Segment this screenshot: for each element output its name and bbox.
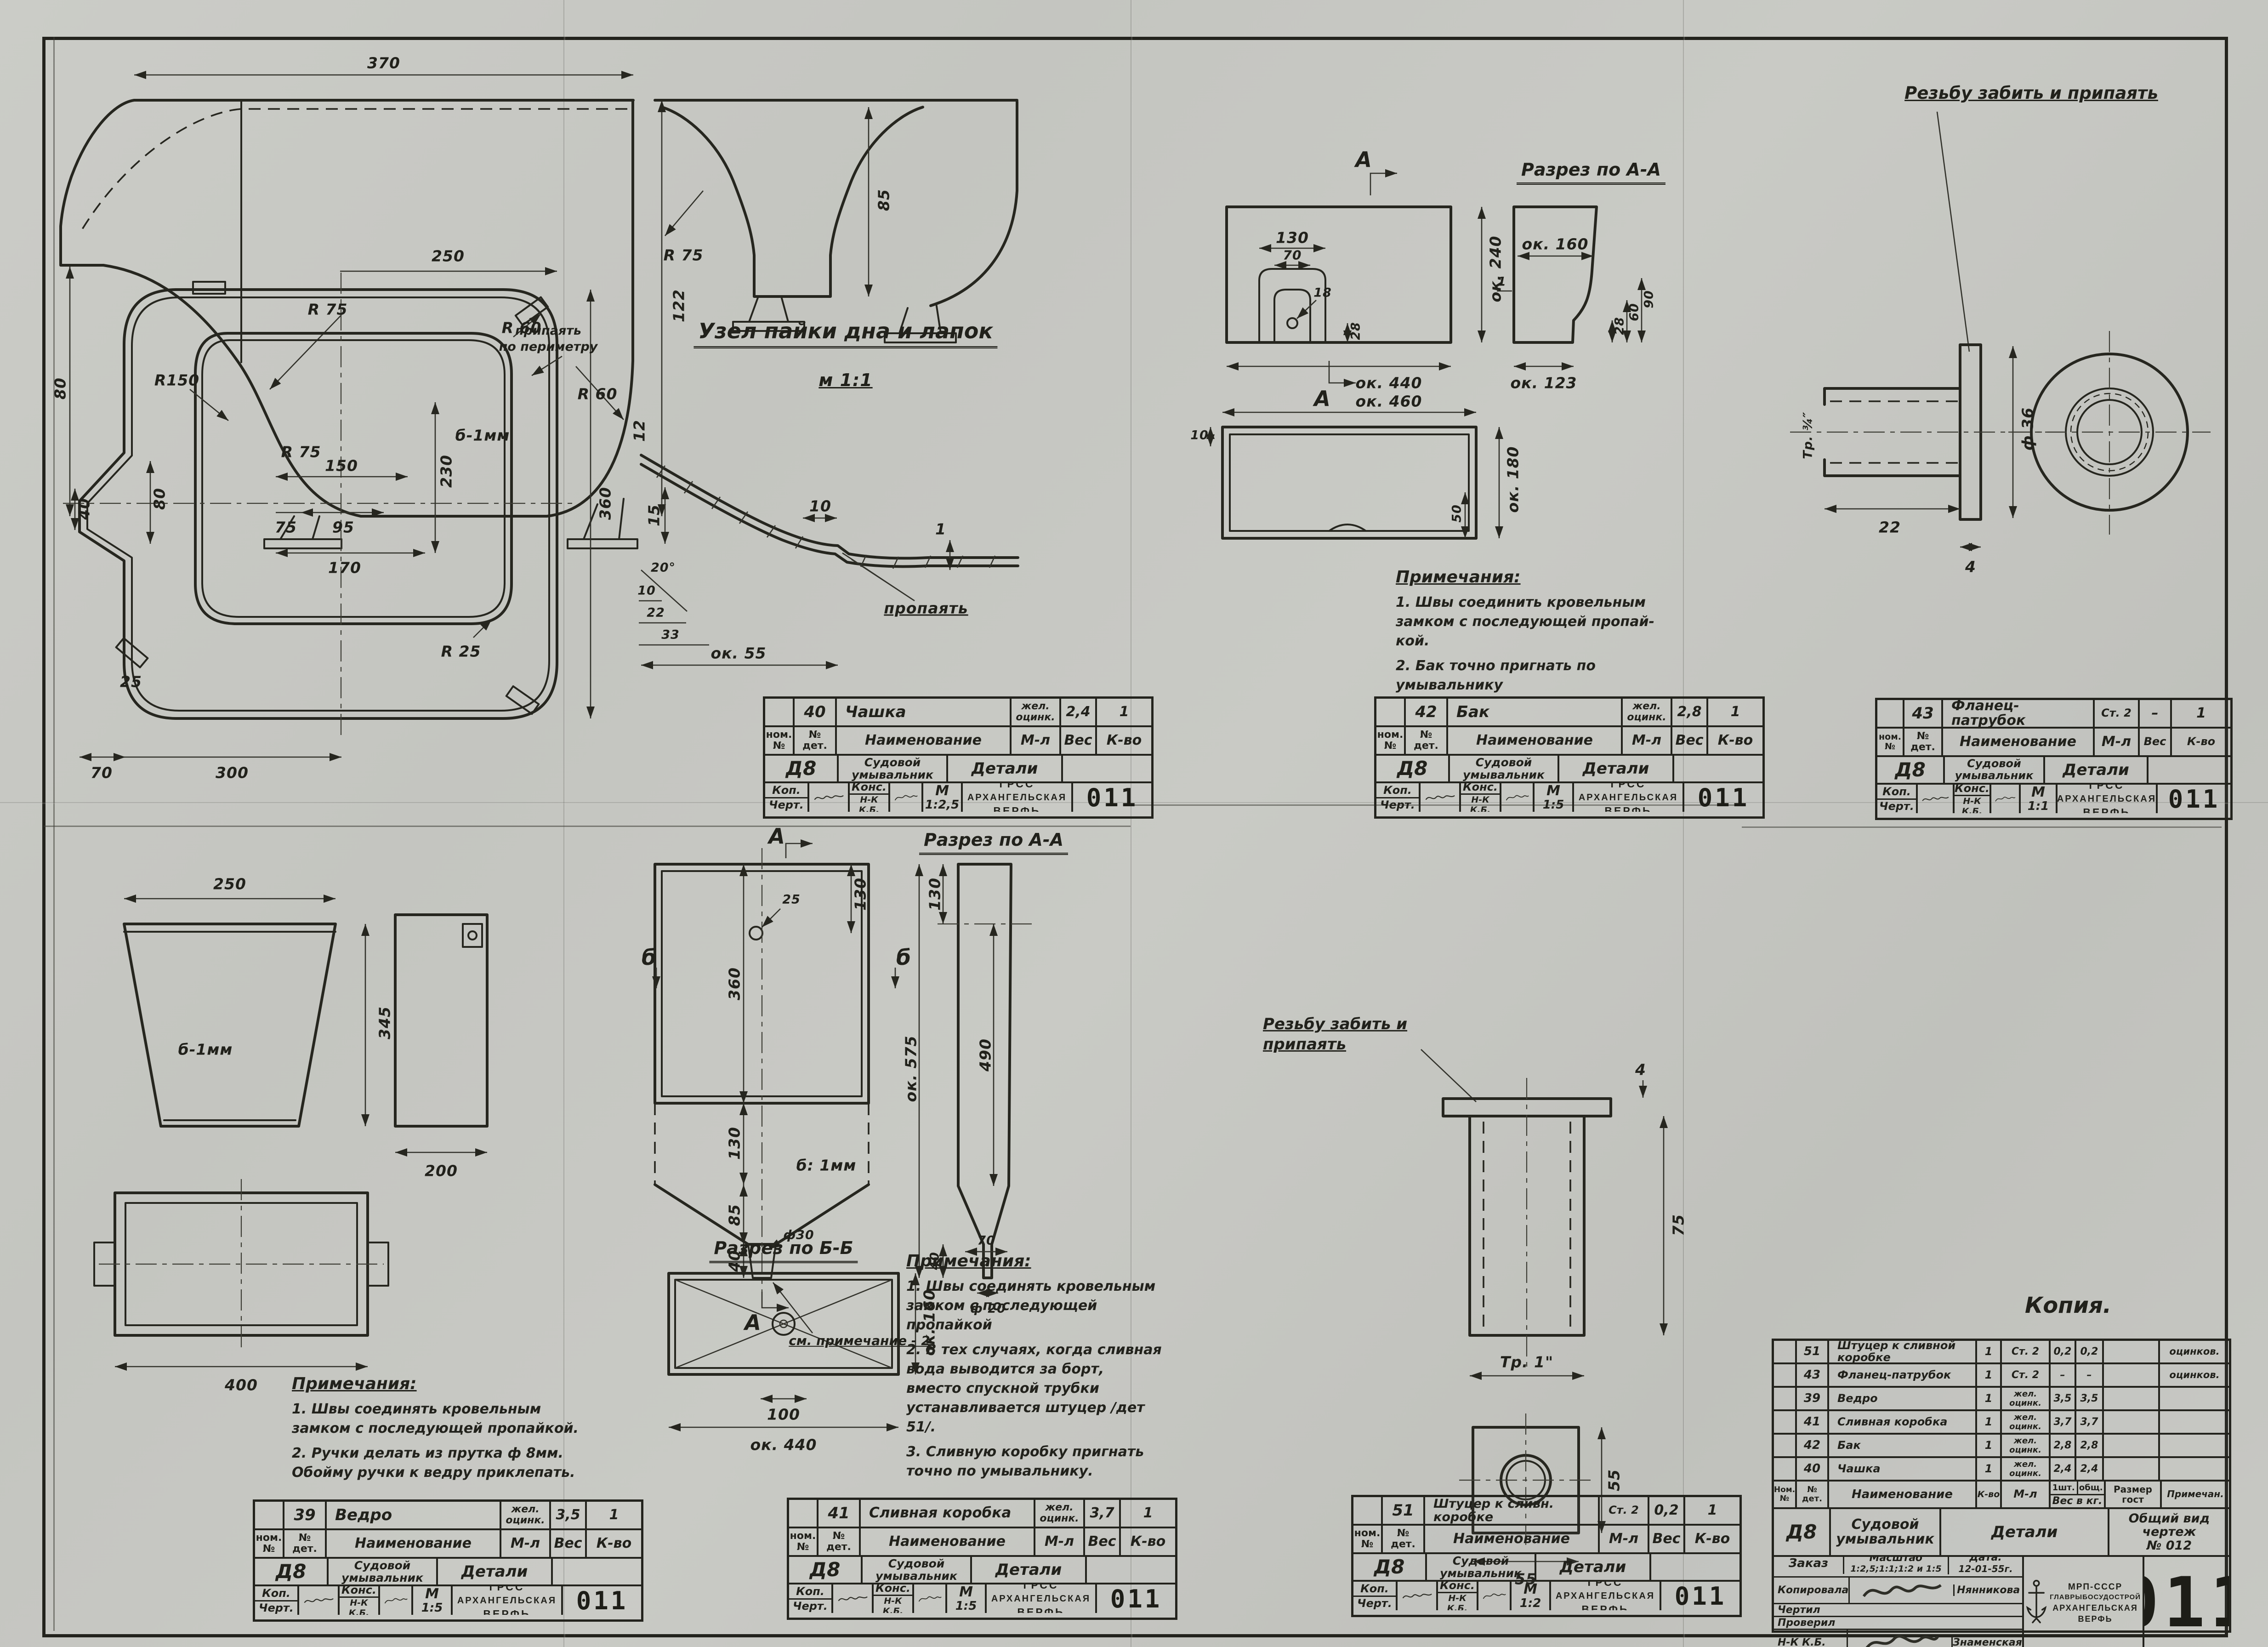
scale-value: 1:5 (1543, 798, 1564, 811)
row-mat: Ст. 2 (2012, 1370, 2039, 1381)
dim-label: 50 (1450, 504, 1464, 523)
dim-label: 22 (1879, 519, 1901, 536)
person-name: Знаменская (1951, 1637, 2022, 1647)
dim-label: 130 (926, 878, 944, 911)
row-qty: 1 (1985, 1463, 1993, 1475)
role-label: Копировала (1774, 1584, 1848, 1596)
scale-label: М (425, 1587, 439, 1601)
dim-label: 55 (1605, 1469, 1623, 1491)
row-mat: жел. оцинк. (2009, 1390, 2041, 1408)
section-title: Разрез по А-А (1517, 160, 1665, 185)
material: жел. оцинк. (1040, 1502, 1079, 1524)
org-yard: АРХАНГЕЛЬСКАЯ (1556, 1590, 1655, 1602)
col-label: № дет. (1910, 731, 1935, 753)
org-yard: АРХАНГЕЛЬСКАЯ (1579, 792, 1678, 804)
sheet-number: 011 (1086, 783, 1138, 812)
role-label: Черт. (255, 1600, 297, 1615)
org-yard: АРХАНГЕЛЬСКАЯ (457, 1595, 557, 1607)
dim-label: 122 (670, 289, 688, 322)
hdr: Размер гост (2114, 1484, 2152, 1505)
drainbox-notes: Примечания: 1. Швы соединять кровельным … (906, 1252, 1173, 1487)
col-label: М-л (511, 1536, 540, 1551)
drainbox-section-aa (919, 864, 1032, 1293)
section-marker: б (896, 945, 911, 970)
row-qty: 1 (1985, 1369, 1993, 1381)
fitting-callout: Резьбу забить и припаять (1263, 1014, 1407, 1054)
role-label: Проверил (1774, 1617, 1847, 1629)
weight: 3,7 (1090, 1506, 1114, 1521)
weight: 0,2 (1654, 1503, 1678, 1518)
org-grss: ГРСС (1587, 1582, 1623, 1590)
role-label: Конс. (1955, 785, 1989, 795)
role-label: Н-К К.Б. (1438, 1592, 1477, 1611)
row-qty: 1 (1985, 1346, 1993, 1358)
col-label: Вес (1064, 733, 1092, 748)
tank-notes: Примечания: 1. Швы соединить кровельным … (1396, 568, 1690, 701)
dim-label: 370 (367, 54, 400, 72)
series: Д8 (1374, 1556, 1405, 1577)
dim-label: б: 1мм (796, 1157, 857, 1174)
row-pos: 39 (1804, 1392, 1820, 1405)
signature (893, 788, 919, 807)
row-pos: 43 (1804, 1368, 1820, 1381)
org-yard: ВЕРФЬ (2050, 1613, 2141, 1624)
dim-label: ок. 180 (1504, 446, 1522, 513)
col-label: № дет. (802, 729, 827, 752)
role-label: Конс. (850, 783, 888, 793)
dim-label: 1 (935, 520, 946, 538)
dim-label: ок. 160 (1522, 235, 1589, 253)
sheet-title: Детали (461, 1563, 528, 1580)
signature (1857, 1630, 1942, 1647)
dim-label: 85 (726, 1204, 744, 1226)
col-label: Вес (1088, 1534, 1116, 1549)
product: Судовой умывальник (1955, 758, 2034, 782)
col-label: № дет. (826, 1531, 851, 1553)
sheet-title: Детали (1583, 760, 1649, 777)
org-yard: ВЕРФЬ (483, 1607, 530, 1615)
col-label: М-л (1609, 1532, 1638, 1546)
dim-label: 25 (782, 893, 801, 907)
dim-label: 12 (631, 420, 648, 442)
scale-values: 1:2,5;1:1;1:2 и 1:5 (1850, 1564, 1941, 1574)
title-block-42: 42 Бак жел. оцинк. 2,8 1 ном. № № дет. Н… (1374, 696, 1765, 819)
detail-callout: пропаять (884, 599, 968, 617)
role-label: Коп. (789, 1584, 831, 1598)
col-label: Наименование (1476, 733, 1593, 748)
material: жел. оцинк. (1016, 701, 1055, 723)
dim-label: 80 (151, 488, 169, 510)
note-item: 2. В тех случаях, когда сливная вода выв… (906, 1340, 1173, 1437)
org-glavk: ГЛАВРЫБОСУДОСТРОЙ (2050, 1593, 2141, 1602)
blueprint-sheet: 370 80 122 R 75 R 60 б-1мм R 75 85 250 R… (0, 0, 2268, 1647)
dim-label: 75 (1670, 1214, 1688, 1236)
org-yard: АРХАНГЕЛЬСКАЯ (991, 1593, 1091, 1605)
sheet-number: 011 (1698, 783, 1750, 812)
row-w2: 2,8 (2080, 1440, 2098, 1451)
dim-label: 75 (275, 519, 297, 536)
dim-label: 18 (1313, 286, 1332, 300)
row-pos: 42 (1804, 1439, 1820, 1452)
dim-label: 490 (977, 1038, 995, 1071)
row-mat: жел. оцинк. (2009, 1413, 2041, 1431)
sheet-number: 011 (2168, 785, 2220, 813)
dim-label: 28 (1349, 322, 1363, 340)
section-marker: А (768, 824, 785, 849)
role-label: Коп. (255, 1586, 297, 1600)
scale-value: 1:5 (955, 1600, 977, 1613)
dim-label: 60 (1627, 303, 1642, 321)
dim-label: 360 (726, 967, 744, 1000)
row-w1: 2,8 (2054, 1440, 2072, 1451)
dim-label: 85 (875, 189, 893, 211)
dim-label: R 75 (281, 443, 321, 461)
dim-label: б-1мм (178, 1041, 233, 1059)
role-label: Коп. (1877, 785, 1916, 798)
row-name: Фланец-патрубок (1837, 1369, 1951, 1381)
flange-front-view (2008, 331, 2211, 535)
dim-label: R 60 (578, 385, 618, 403)
note-item: 1. Швы соединять кровельным замком с пос… (292, 1400, 623, 1438)
dim-label: R 75 (664, 246, 704, 264)
dim-label: 1 (1497, 275, 1506, 289)
section-marker: А (1314, 386, 1330, 411)
panel-tank: А А Разрез по А-А 130 70 18 28 ок. 440 о… (1131, 39, 1710, 802)
quantity: 1 (1731, 705, 1740, 719)
dim-label: 250 (213, 875, 246, 893)
signature (1401, 1587, 1433, 1605)
dim-label: 400 (225, 1376, 258, 1394)
tank-front-view (1227, 173, 1482, 383)
main-title-block: 51 Штуцер к сливной коробке 1 Ст. 2 0,2 … (1772, 1339, 2231, 1633)
dim-label: 345 (376, 1006, 394, 1039)
product: Судовой умывальник (875, 1557, 957, 1582)
shipyard-anchor-icon (2026, 1566, 2047, 1640)
role-label: Н-К К.Б. (850, 793, 888, 812)
date-label: Дата. (1969, 1557, 2001, 1563)
org-grss: ГРСС (2089, 785, 2124, 793)
dim-label: 70 (1283, 248, 1302, 263)
row-qty: 1 (1985, 1416, 1993, 1428)
scale-label: М (1546, 784, 1560, 798)
row-w1: 3,7 (2054, 1417, 2072, 1428)
org-grss: ГРСС (489, 1586, 524, 1595)
paste-edge (1742, 826, 2222, 828)
series: Д8 (786, 758, 817, 779)
dim-label: Тр. ¾″ (1801, 411, 1815, 459)
dim-label: 100 (767, 1406, 800, 1424)
series: Д8 (1895, 759, 1926, 780)
dim-label: 230 (438, 455, 455, 488)
person-name: Нянникова (1953, 1584, 2022, 1596)
scale-value: 1:1 (2028, 800, 2049, 813)
role-label: Черт. (1877, 798, 1916, 814)
bucket-front-view (124, 899, 365, 1126)
section-marker: А (1355, 147, 1372, 172)
col-label: № дет. (292, 1533, 317, 1555)
signature (1859, 1578, 1944, 1603)
role-label: Коп. (1376, 783, 1419, 797)
col-label: ном. № (1879, 732, 1901, 752)
dim-label: 10 (1190, 428, 1209, 443)
dim-label: R 75 (308, 301, 348, 319)
row-w2: 0,2 (2080, 1346, 2098, 1357)
sheet-title: Детали (1560, 1559, 1626, 1576)
dim-label: ок. 440 (1356, 374, 1422, 392)
product: Судовой умывальник (1836, 1517, 1934, 1547)
org-grss: ГРСС (1023, 1584, 1058, 1593)
part-name: Сливная коробка (869, 1505, 1011, 1521)
dim-label: 90 (1642, 290, 1656, 308)
series: Д8 (810, 1559, 841, 1580)
role-label: Чертил (1774, 1604, 1847, 1616)
role-label: Черт. (789, 1598, 831, 1613)
dim-label: 200 (425, 1162, 458, 1180)
series: Д8 (1397, 758, 1428, 779)
dim-label: 28 (1613, 317, 1627, 335)
org-yard: ВЕРФЬ (1017, 1605, 1064, 1613)
dim-label: ок. 55 (711, 644, 766, 662)
role-label: Коп. (1353, 1582, 1396, 1596)
org-yard: АРХАНГЕЛЬСКАЯ (2057, 793, 2156, 805)
col-label: Наименование (1960, 735, 2076, 749)
col-label: М-л (1632, 733, 1661, 748)
series: Д8 (1786, 1522, 1817, 1542)
note-item: 1. Швы соединить кровельным замком с пос… (1396, 593, 1690, 651)
dim-label: 33 (661, 628, 680, 642)
col-label: К-во (1695, 1532, 1730, 1546)
note-item: 1. Швы соединять кровельным замком с пос… (906, 1277, 1173, 1335)
hdr: К-во (1978, 1490, 2000, 1499)
row-mat: Ст. 2 (2012, 1346, 2039, 1357)
cup-drawing (44, 39, 1149, 802)
row-w1: 3,5 (2054, 1393, 2072, 1404)
part-number: 42 (1415, 704, 1437, 721)
role-label: Черт. (765, 797, 807, 812)
role-label: Конс. (340, 1586, 378, 1596)
paste-edge (44, 826, 1131, 827)
dim-label: 300 (216, 764, 249, 782)
row-w2: 3,5 (2080, 1393, 2098, 1404)
part-name: Штуцер к сливн. коробке (1433, 1497, 1598, 1524)
dim-label: 20° (651, 561, 676, 575)
scale-value: 1:2,5 (925, 798, 960, 811)
row-mat: жел. оцинк. (2009, 1460, 2041, 1478)
note-item: 3. Сливную коробку пригнать точно по умы… (906, 1442, 1173, 1481)
role-label: Черт. (1353, 1596, 1396, 1611)
role-label: Конс. (1438, 1582, 1477, 1592)
row-note: оцинков. (2169, 1370, 2219, 1380)
material: жел. оцинк. (1627, 701, 1666, 723)
row-name: Бак (1837, 1440, 1861, 1452)
sheet-title: Детали (995, 1562, 1062, 1579)
col-label: Вес (554, 1536, 582, 1551)
col-label: ном. № (1354, 1528, 1381, 1550)
section-title: Разрез по Б-Б (709, 1238, 858, 1263)
dim-label: 70 (977, 1234, 995, 1248)
sheet-title: Детали (972, 760, 1038, 777)
part-name: Бак (1456, 704, 1489, 721)
col-label: ном. № (256, 1533, 282, 1555)
cup-section-view (655, 100, 1017, 342)
sheet-number: 011 (1675, 1582, 1727, 1610)
dim-label: 130 (1276, 229, 1309, 247)
signature (383, 1591, 409, 1610)
part-number: 41 (828, 1505, 849, 1522)
dim-label: 250 (432, 247, 465, 265)
part-number: 43 (1912, 705, 1933, 722)
note-item: 2. Ручки делать из прутка ф 8мм. Обойму … (292, 1444, 623, 1482)
part-name: Чашка (845, 704, 906, 721)
dim-label: б-1мм (455, 427, 510, 445)
section-marker: б (642, 945, 656, 970)
dim-label: 130 (852, 878, 870, 911)
org-yard: АРХАНГЕЛЬСКАЯ (967, 792, 1067, 804)
panel-cup: 370 80 122 R 75 R 60 б-1мм R 75 85 250 R… (44, 39, 1149, 802)
row-name: Штуцер к сливной коробке (1837, 1341, 1975, 1362)
row-pos: 51 (1804, 1345, 1820, 1358)
view-ref: Общий вид чертеж № 012 (2129, 1512, 2210, 1552)
role-label: Н-К К.Б. (1955, 795, 1989, 814)
fitting-side-view (1421, 1049, 1664, 1376)
weight: 2,4 (1066, 705, 1090, 719)
hdr: Вес в кг. (2051, 1494, 2104, 1508)
dim-label: 360 (597, 487, 614, 520)
org-yard: ВЕРФЬ (993, 804, 1040, 812)
col-label: Вес (2144, 736, 2166, 748)
org-yard: ВЕРФЬ (2083, 805, 2130, 814)
col-label: Наименование (355, 1536, 472, 1551)
hdr: общ. (2077, 1482, 2104, 1494)
role-label: Конс. (1461, 783, 1500, 793)
date-value: 12-01-55г. (1958, 1563, 2012, 1574)
signature (1481, 1587, 1507, 1605)
dim-label: Тр. 1" (1500, 1353, 1553, 1371)
dim-label: R 25 (441, 643, 481, 661)
dim-label: 10 (809, 497, 831, 515)
row-w2: – (2087, 1370, 2092, 1381)
quantity: 1 (2196, 706, 2206, 721)
series: Д8 (276, 1561, 307, 1582)
product: Судовой умывальник (1440, 1555, 1522, 1579)
part-name: Фланец-патрубок (1951, 700, 2093, 727)
part-number: 51 (1392, 1502, 1414, 1519)
quantity: 1 (609, 1508, 619, 1522)
title-block-39: 39 Ведро жел. оцинк. 3,5 1 ном. № № дет.… (253, 1499, 643, 1622)
row-pos: 41 (1804, 1415, 1820, 1428)
copy-label: Копия. (2025, 1293, 2111, 1318)
dim-label: 70 (91, 764, 113, 782)
row-w2: 3,7 (2080, 1417, 2098, 1428)
row-mat: жел. оцинк. (2009, 1436, 2041, 1454)
row-name: Сливная коробка (1837, 1416, 1947, 1428)
dim-label: ок. 440 (750, 1436, 817, 1454)
dim-label: 4 (1965, 558, 1976, 576)
sheet-number: 011 (2143, 1563, 2229, 1643)
sheet-title: Детали (2063, 762, 2129, 779)
row-w1: – (2060, 1370, 2065, 1381)
col-label: К-во (597, 1536, 632, 1551)
tank-section-view (1497, 207, 1642, 366)
row-name: Чашка (1837, 1463, 1881, 1475)
org-grss: ГРСС (1610, 783, 1646, 792)
signature (813, 788, 845, 807)
col-label: К-во (1131, 1534, 1166, 1549)
sheet-number: 011 (576, 1586, 628, 1615)
signature (1921, 790, 1950, 808)
dim-label: 80 (51, 377, 69, 399)
part-number: 39 (294, 1507, 315, 1524)
weight: 3,5 (556, 1508, 580, 1522)
detail-scale: м 1:1 (819, 370, 872, 390)
hdr: № дет. (1802, 1485, 1822, 1504)
scale-value: 1:2 (1520, 1597, 1541, 1610)
weight: 2,8 (1677, 705, 1701, 719)
dim-label: 130 (726, 1127, 744, 1160)
signature (1424, 788, 1456, 807)
part-name: Ведро (335, 1507, 392, 1524)
signature (837, 1590, 869, 1608)
row-w1: 0,2 (2054, 1346, 2072, 1357)
product: Судовой умывальник (852, 756, 933, 781)
signature (1994, 790, 2016, 808)
material: жел. оцинк. (506, 1504, 545, 1526)
hdr: Примечан. (2167, 1489, 2224, 1499)
hdr: М-л (2013, 1488, 2037, 1500)
notes-title: Примечания: (1396, 568, 1521, 587)
dim-label: 10 (637, 584, 656, 598)
dim-label: ок. 460 (1356, 393, 1422, 410)
dim-label: ок. 240 (1487, 236, 1505, 302)
row-w1: 2,4 (2054, 1464, 2072, 1475)
material: Ст. 2 (2101, 707, 2132, 719)
role-label: Черт. (1376, 797, 1419, 812)
signature (1504, 788, 1530, 807)
dim-label: 15 (645, 504, 663, 526)
col-label: Наименование (889, 1534, 1006, 1549)
hdr: Ном. № (1774, 1486, 1795, 1503)
bucket-notes: Примечания: 1. Швы соединять кровельным … (292, 1374, 623, 1488)
role-label: Н-К К.Б. (874, 1595, 912, 1613)
dim-label: 170 (328, 559, 361, 577)
title-block-40: 40 Чашка жел. оцинк. 2,4 1 ном. № № дет.… (763, 696, 1154, 819)
col-label: ном. № (1377, 729, 1404, 752)
org-yard: ВЕРФЬ (1581, 1602, 1629, 1611)
col-label: К-во (1107, 733, 1142, 748)
signature (303, 1591, 335, 1610)
col-label: Наименование (1453, 1532, 1570, 1546)
role-label: Н-К К.Б. (340, 1596, 378, 1615)
panel-flange: Резьбу забить и припаять ф 36 22 4 Тр. ¾… (1710, 39, 2229, 802)
row-qty: 1 (1985, 1393, 1993, 1405)
section-title: Разрез по А-А (919, 830, 1068, 855)
org-grss: ГРСС (999, 783, 1035, 792)
part-number: 40 (804, 704, 825, 721)
hdr: Наименование (1852, 1488, 1953, 1501)
org-yard: ВЕРФЬ (1604, 804, 1652, 812)
col-label: М-л (2102, 735, 2131, 749)
hdr: 1шт. (2051, 1482, 2077, 1494)
bucket-bottom-view (94, 1179, 388, 1367)
bucket-side-view (395, 915, 487, 1152)
col-label: ном. № (766, 729, 792, 752)
detail-title: Узел пайки дна и лапок (693, 319, 997, 348)
col-label: Наименование (865, 733, 982, 748)
title-block-41: 41 Сливная коробка жел. оцинк. 3,7 1 ном… (787, 1498, 1177, 1620)
zakaz-label: Заказ (1774, 1557, 1843, 1570)
dim-label: ок. 123 (1511, 374, 1577, 392)
dim-label: ф 36 (2019, 407, 2037, 450)
